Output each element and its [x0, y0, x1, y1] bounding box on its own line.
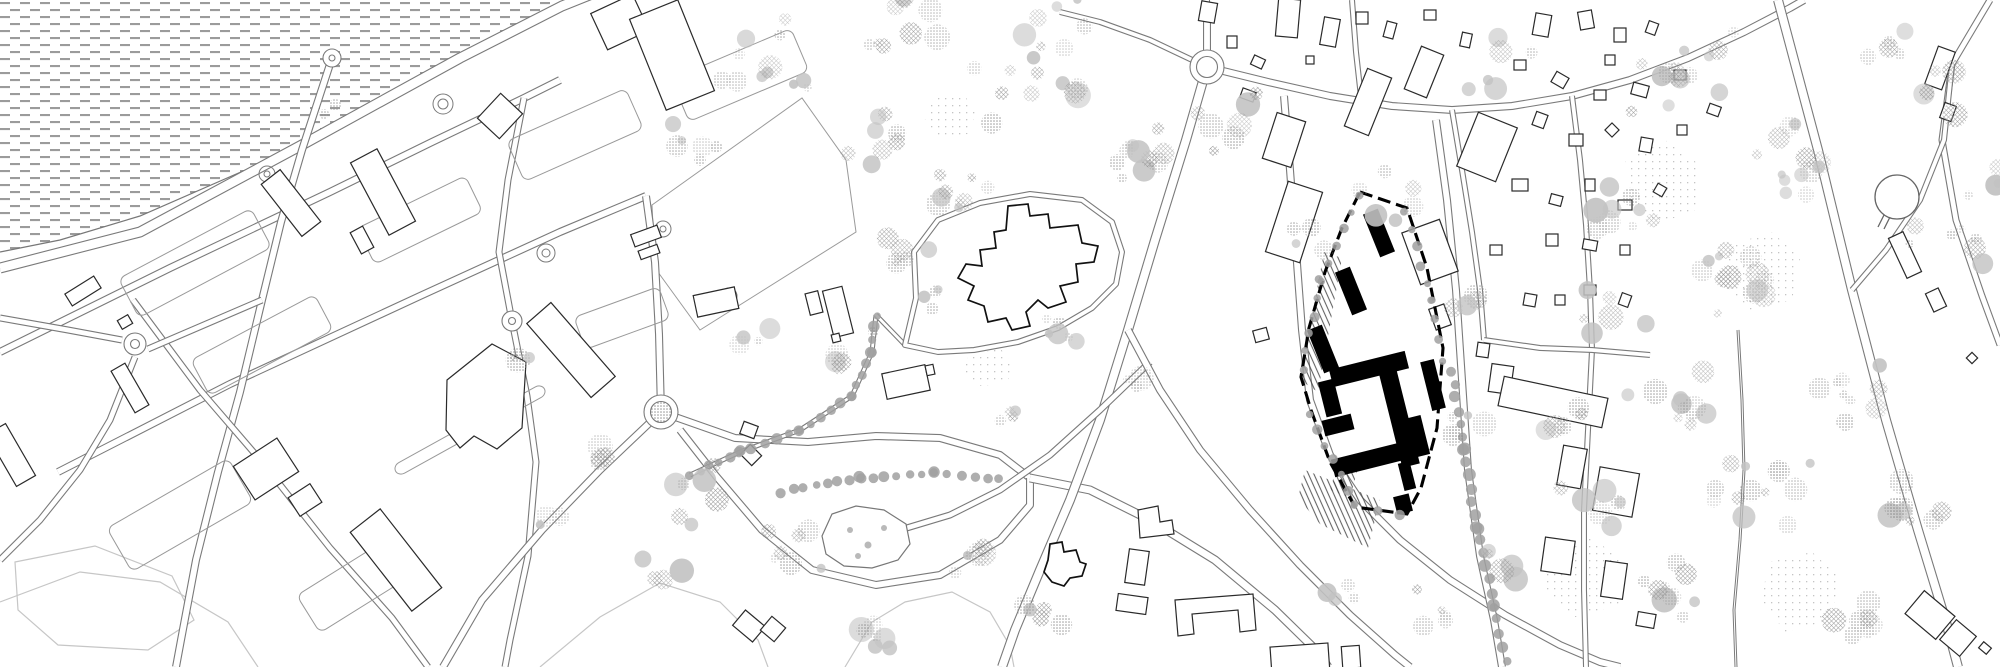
culdesac-loop: [438, 99, 448, 109]
avenue-tree: [1439, 358, 1446, 365]
building: [1270, 643, 1330, 667]
tree: [1707, 493, 1722, 508]
tree: [1839, 390, 1848, 399]
avenue-tree: [1313, 294, 1321, 302]
parking-lot: [507, 88, 644, 181]
building: [1356, 12, 1368, 24]
avenue-tree: [745, 443, 756, 454]
avenue-tree: [1338, 471, 1345, 478]
avenue-tree: [1446, 367, 1456, 377]
building: [733, 610, 766, 642]
tree: [1117, 173, 1127, 183]
building: [1636, 612, 1656, 629]
tree: [1029, 9, 1047, 27]
building: [1614, 28, 1626, 42]
avenue-tree: [878, 471, 889, 482]
building: [1631, 82, 1650, 98]
building: [1569, 134, 1583, 146]
tree: [1636, 58, 1648, 70]
building: [1639, 137, 1653, 153]
tree: [1402, 196, 1423, 217]
tree: [1622, 188, 1640, 206]
tree: [918, 291, 930, 303]
tree: [1328, 592, 1342, 606]
tree: [1051, 614, 1072, 635]
building: [1645, 21, 1659, 36]
building: [1457, 112, 1518, 182]
avenue-tree: [1503, 657, 1511, 665]
tree: [1906, 240, 1914, 248]
pond-tree: [881, 525, 887, 531]
tree: [967, 61, 981, 75]
building: [1582, 239, 1598, 251]
culdesac-loop: [537, 244, 555, 262]
building-manor: [958, 204, 1098, 330]
building: [1523, 293, 1537, 307]
site-plan-svg: [0, 0, 2000, 667]
site-building-block: [1322, 414, 1355, 437]
tree: [1013, 23, 1036, 46]
building: [1620, 245, 1630, 255]
tree: [1768, 460, 1790, 482]
roundabout-island: [651, 402, 672, 423]
tree: [1621, 388, 1634, 401]
avenue-tree: [983, 474, 993, 484]
tree: [1302, 218, 1321, 237]
avenue-tree: [1332, 242, 1341, 251]
building: [693, 287, 739, 317]
tree: [1482, 549, 1493, 560]
tree: [1747, 279, 1769, 301]
tree: [536, 520, 545, 529]
tree: [1579, 281, 1597, 299]
tree: [949, 566, 961, 578]
tree: [995, 86, 1009, 100]
tree: [1389, 213, 1402, 226]
avenue-tree: [892, 472, 900, 480]
avenue-tree: [1304, 329, 1312, 337]
tree: [1628, 222, 1637, 231]
tree: [870, 109, 886, 125]
tree: [1778, 516, 1796, 534]
tree: [1963, 190, 1972, 199]
building: [925, 364, 935, 375]
avenue-tree: [994, 474, 1003, 483]
tree: [1447, 412, 1457, 422]
tree: [692, 136, 713, 157]
building: [527, 303, 615, 398]
tree: [1553, 481, 1568, 496]
building: [117, 315, 132, 330]
tree: [1014, 595, 1035, 616]
tree: [737, 30, 755, 48]
building: [760, 616, 785, 641]
building: [1262, 113, 1305, 168]
building: [1490, 245, 1502, 255]
tree: [1761, 488, 1770, 497]
avenue-tree: [785, 430, 793, 438]
tree: [1572, 488, 1596, 512]
avenue-tree: [1449, 391, 1460, 402]
tree: [981, 112, 1002, 133]
avenue-tree: [823, 479, 833, 489]
building: [1512, 179, 1528, 191]
culdesac-loop: [542, 249, 550, 257]
tree: [797, 520, 820, 543]
avenue-tree: [798, 483, 807, 492]
avenue-tree: [858, 371, 867, 380]
avenue-tree: [1470, 521, 1482, 533]
building: [805, 291, 823, 315]
building: [350, 226, 374, 254]
building: [1116, 593, 1148, 614]
building: [1532, 111, 1548, 128]
building: [1551, 71, 1569, 88]
tree: [876, 38, 891, 53]
tree: [1943, 102, 1968, 127]
tree: [1946, 229, 1957, 240]
avenue-tree: [1310, 312, 1320, 322]
tree: [1036, 42, 1045, 51]
culdesac-loop: [264, 171, 270, 177]
building: [0, 424, 36, 487]
tree: [1068, 333, 1085, 350]
avenue-tree: [1430, 315, 1438, 323]
building: [1253, 327, 1270, 342]
avenue-tree: [760, 439, 770, 449]
avenue-tree: [1300, 366, 1308, 374]
tree: [918, 0, 942, 22]
tree: [590, 448, 610, 468]
tree: [1985, 175, 2000, 196]
building: [1341, 645, 1360, 667]
avenue-tree: [1424, 280, 1431, 287]
tree: [1646, 213, 1660, 227]
balloon-tree: [1875, 175, 1919, 219]
tree: [1679, 46, 1689, 56]
avenue-tree: [1408, 226, 1415, 233]
building: [1460, 32, 1473, 48]
avenue-tree: [852, 381, 860, 389]
tree: [1413, 616, 1433, 636]
building: [1250, 55, 1265, 69]
tree: [1989, 159, 2000, 177]
tree: [886, 253, 907, 274]
tree: [1005, 65, 1016, 76]
tree: [1896, 23, 1913, 40]
tree: [899, 22, 922, 45]
tree: [1472, 412, 1497, 437]
tree: [817, 564, 826, 573]
tree: [1794, 168, 1809, 183]
tree: [1658, 61, 1681, 84]
tree: [670, 558, 694, 582]
tree: [1067, 78, 1088, 99]
avenue-tree: [1351, 502, 1357, 508]
tree: [1341, 579, 1354, 592]
tree: [1870, 380, 1888, 398]
tree: [1662, 587, 1681, 606]
avenue-tree: [1460, 457, 1471, 468]
avenue-tree: [1416, 261, 1426, 271]
tree: [1889, 469, 1914, 494]
building: [1707, 103, 1722, 117]
tree: [1023, 85, 1039, 101]
tree: [1822, 608, 1847, 633]
tree: [775, 30, 786, 41]
tree: [1010, 406, 1021, 417]
avenue-tree: [1321, 442, 1329, 450]
tree: [1543, 415, 1566, 438]
tree: [1929, 65, 1941, 77]
tree: [1147, 151, 1168, 172]
tree: [1405, 180, 1421, 196]
road-surface: [148, 300, 262, 349]
building: [1306, 56, 1314, 64]
tree: [1718, 242, 1735, 259]
avenue-tree: [867, 347, 877, 357]
tree: [779, 552, 802, 575]
tree: [1127, 140, 1150, 163]
road-surface: [1484, 340, 1650, 355]
tree: [981, 181, 994, 194]
avenue-tree: [1301, 347, 1308, 354]
building: [1618, 293, 1632, 308]
tree: [1942, 60, 1964, 82]
tree: [1836, 413, 1854, 431]
tree: [868, 327, 878, 337]
culdesac-loop: [433, 94, 453, 114]
tree: [694, 154, 706, 166]
building: [1404, 46, 1443, 98]
avenue-tree: [1463, 468, 1476, 481]
tree: [1045, 330, 1053, 338]
building: [1532, 13, 1552, 37]
tree: [677, 478, 689, 490]
avenue-tree: [971, 473, 980, 482]
tree: [1865, 397, 1886, 418]
avenue-tree: [957, 471, 967, 481]
roundabout-island: [509, 318, 516, 325]
tree: [954, 203, 963, 212]
building: [288, 484, 322, 517]
meadow-patch: [924, 92, 976, 136]
avenue-tree: [813, 481, 821, 489]
building: [1383, 21, 1397, 39]
tree: [1412, 584, 1422, 594]
building: [1514, 60, 1526, 70]
tree: [882, 640, 897, 655]
building: [1549, 194, 1563, 207]
tree: [1439, 610, 1451, 622]
tree: [647, 571, 662, 586]
avenue-tree: [874, 312, 881, 319]
tree: [1895, 49, 1906, 60]
parking-lot: [107, 458, 253, 571]
tree: [1780, 187, 1792, 199]
building: [1979, 642, 1992, 655]
tree: [1464, 411, 1472, 419]
avenue-tree: [1348, 209, 1355, 216]
tree: [1581, 322, 1603, 344]
pond: [822, 506, 910, 568]
tree: [1483, 75, 1493, 85]
avenue-tree: [1343, 486, 1353, 496]
building: [1546, 234, 1558, 246]
tree: [967, 173, 976, 182]
avenue-tree: [1328, 454, 1338, 464]
tree: [1703, 255, 1715, 267]
avenue-tree: [1492, 614, 1501, 623]
avenue-tree: [846, 391, 856, 401]
tree: [1191, 106, 1205, 120]
tree: [1711, 83, 1729, 101]
avenue-tree: [1466, 484, 1477, 495]
tree: [779, 13, 792, 26]
road-casing: [443, 412, 661, 667]
tree: [1663, 99, 1675, 111]
tree: [524, 352, 535, 363]
avenue-tree: [1434, 335, 1443, 344]
parking-lot: [118, 208, 271, 317]
tree: [1780, 116, 1800, 136]
building: [631, 225, 662, 247]
tree: [1638, 575, 1650, 587]
avenue-tree: [1466, 496, 1477, 507]
building: [1966, 352, 1977, 363]
tree: [1365, 204, 1388, 227]
tree: [1808, 377, 1830, 399]
building-l-house: [1138, 506, 1174, 538]
building: [1605, 55, 1615, 65]
tree: [920, 241, 937, 258]
avenue-tree: [1497, 642, 1508, 653]
tree: [1615, 497, 1626, 508]
avenue-tree: [1395, 510, 1405, 520]
tree: [1682, 67, 1698, 83]
avenue-tree: [1469, 509, 1481, 521]
tree: [1885, 498, 1907, 520]
tree: [1956, 225, 1965, 234]
avenue-tree: [832, 476, 842, 486]
avenue-tree: [807, 421, 815, 429]
tree: [1027, 51, 1041, 65]
tree: [1076, 18, 1092, 34]
tree: [671, 508, 688, 525]
building: [831, 333, 841, 343]
tree: [1784, 478, 1808, 502]
avenue-tree: [835, 398, 846, 409]
tree: [1683, 396, 1706, 419]
tree: [1873, 358, 1887, 372]
building: [882, 365, 930, 400]
tree: [1675, 563, 1697, 585]
tree: [1778, 171, 1786, 179]
avenue-tree: [1427, 297, 1435, 305]
tree: [1575, 408, 1587, 420]
building: [1605, 123, 1619, 137]
tree: [761, 524, 776, 539]
tree: [1813, 161, 1825, 173]
avenue-tree: [775, 488, 785, 498]
tree: [789, 79, 798, 88]
tree: [826, 343, 849, 366]
tree: [666, 135, 688, 157]
avenue-tree: [1312, 424, 1322, 434]
tree: [1689, 596, 1700, 607]
road-casing: [1002, 67, 1207, 667]
avenue-tree: [868, 336, 876, 344]
avenue-tree: [918, 471, 925, 478]
building: [1888, 232, 1921, 279]
road-surface: [876, 315, 905, 345]
building-church: [1044, 542, 1086, 586]
building: [351, 149, 416, 235]
tree: [1728, 26, 1739, 37]
tree: [938, 185, 953, 200]
tree: [665, 116, 681, 132]
avenue-tree: [1339, 224, 1349, 234]
avenue-tree: [861, 358, 871, 368]
tree: [1677, 611, 1689, 623]
site-plan-canvas: [0, 0, 2000, 667]
tree: [319, 109, 329, 119]
avenue-tree: [793, 425, 804, 436]
tree: [634, 551, 651, 568]
roundabout-island: [329, 55, 335, 61]
tree: [1598, 304, 1623, 329]
tree: [1844, 627, 1862, 645]
tree: [934, 285, 943, 294]
building: [1594, 90, 1606, 100]
tree: [1919, 85, 1934, 100]
tree: [1798, 186, 1814, 202]
tree: [1462, 82, 1476, 96]
building: [1555, 295, 1565, 305]
tree: [1250, 87, 1263, 100]
tree: [1806, 459, 1815, 468]
building: [1476, 342, 1490, 358]
tree: [1603, 291, 1617, 305]
building: [630, 0, 715, 110]
tree: [733, 48, 745, 60]
tree: [1633, 204, 1645, 216]
site-building-block: [1398, 461, 1416, 491]
avenue-tree: [789, 484, 799, 494]
tree: [1626, 106, 1638, 118]
tree: [1378, 165, 1392, 179]
building: [1541, 537, 1575, 575]
building: [1275, 0, 1300, 38]
pond-tree: [865, 542, 872, 549]
building: [350, 509, 442, 611]
building-u-hall: [1175, 594, 1256, 636]
tree: [1722, 455, 1739, 472]
tree: [1227, 113, 1252, 138]
tree: [1714, 309, 1722, 317]
avenue-tree: [1494, 629, 1504, 639]
tree: [796, 73, 811, 88]
roundabout-island: [1197, 57, 1218, 78]
avenue-tree: [943, 470, 951, 478]
tree: [924, 24, 950, 50]
avenue-tree: [906, 470, 914, 478]
avenue-tree: [771, 433, 782, 444]
tree: [329, 99, 341, 111]
tree: [1031, 67, 1044, 80]
avenue-tree: [1306, 411, 1313, 418]
tree: [1457, 295, 1477, 315]
